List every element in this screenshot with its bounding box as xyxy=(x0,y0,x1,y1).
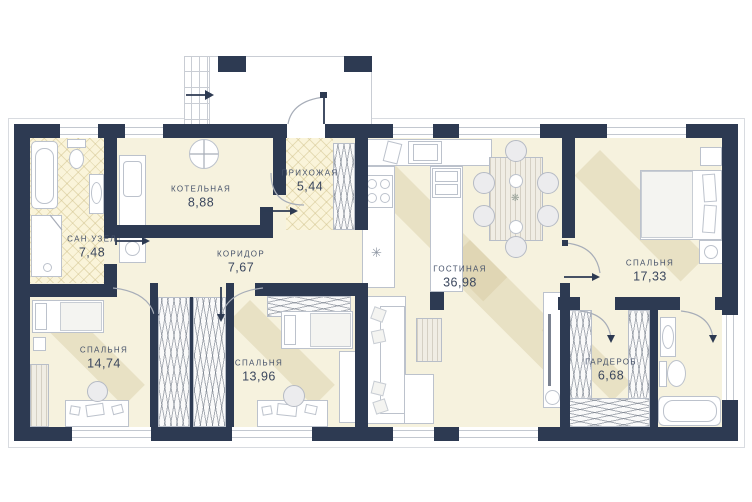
wall xyxy=(104,138,117,238)
bed-blanket xyxy=(60,302,102,331)
desk-chair xyxy=(87,381,108,402)
toilet-bowl xyxy=(69,149,84,169)
window xyxy=(393,124,433,138)
room-name: СПАЛЬНЯ xyxy=(80,346,128,355)
nightstand xyxy=(33,337,46,351)
table-plate xyxy=(509,174,523,188)
room-area: 17,33 xyxy=(626,270,674,284)
nightstand xyxy=(700,147,722,166)
bed-pillow xyxy=(702,205,717,234)
window xyxy=(607,124,686,138)
nightstand-plant xyxy=(704,245,718,259)
bathroom-sink xyxy=(91,182,102,204)
wall xyxy=(562,138,575,238)
wall xyxy=(30,284,110,297)
window xyxy=(459,124,540,138)
room-name: КОРИДОР xyxy=(217,250,265,259)
wall xyxy=(355,283,368,427)
fridge-door xyxy=(435,184,458,195)
dining-chair xyxy=(505,236,527,258)
room-label-bedroom-1: СПАЛЬНЯ 17,33 xyxy=(626,259,674,284)
room-area: 36,98 xyxy=(433,276,487,290)
utility-sink xyxy=(123,161,142,197)
room-area: 7,67 xyxy=(217,261,265,275)
window xyxy=(722,315,738,400)
room-label-boiler: КОТЕЛЬНАЯ 8,88 xyxy=(171,185,231,210)
wall xyxy=(355,138,368,230)
wall xyxy=(190,297,193,427)
bathtub-basin xyxy=(663,400,717,422)
wall xyxy=(715,297,738,310)
boiler xyxy=(189,139,219,169)
room-name: СПАЛЬНЯ xyxy=(235,359,283,368)
room-label-bathroom: САН.УЗЕЛ 7,48 xyxy=(67,235,117,260)
room-label-corridor: КОРИДОР 7,67 xyxy=(217,250,265,275)
window xyxy=(72,427,151,441)
porch-steps xyxy=(184,56,210,125)
room-label-living: ГОСТИНАЯ 36,98 xyxy=(433,265,487,290)
room-label-bedroom-2: СПАЛЬНЯ 14,74 xyxy=(80,346,128,371)
porch-pillar xyxy=(218,56,246,72)
sofa-chaise xyxy=(404,374,434,424)
dining-chair xyxy=(473,172,495,194)
wall xyxy=(14,124,30,441)
window xyxy=(393,427,434,441)
floor-plan: ✳ ❋ xyxy=(0,0,752,502)
window xyxy=(60,124,98,138)
room-label-bedroom-3: СПАЛЬНЯ 13,96 xyxy=(235,359,283,384)
room-name: САН.УЗЕЛ xyxy=(67,235,117,244)
dining-chair xyxy=(537,172,559,194)
dining-chair xyxy=(505,140,527,162)
table-plant-icon: ❋ xyxy=(511,194,519,204)
burner xyxy=(380,179,390,189)
room-area: 8,88 xyxy=(171,196,231,210)
laptop xyxy=(85,403,104,417)
porch-pillar xyxy=(344,56,372,72)
entrance-opening xyxy=(287,124,325,138)
wall xyxy=(226,283,234,427)
wall xyxy=(260,207,273,225)
papers xyxy=(69,405,80,416)
bed-pillow xyxy=(35,303,47,330)
room-area: 13,96 xyxy=(235,370,283,384)
toilet-tank xyxy=(659,361,667,387)
fridge-door xyxy=(435,171,458,182)
window xyxy=(232,427,312,441)
dining-chair xyxy=(473,205,495,227)
table-plate xyxy=(509,220,523,234)
dining-chair xyxy=(537,205,559,227)
room-name: СПАЛЬНЯ xyxy=(626,259,674,268)
desk-chair xyxy=(283,385,305,407)
room-label-entry: ПРИХОЖАЯ 5,44 xyxy=(282,169,339,194)
sofa-pillow xyxy=(371,329,386,344)
burner xyxy=(380,193,390,203)
papers xyxy=(261,405,272,416)
room-area: 6,68 xyxy=(585,369,637,383)
room-name: КОТЕЛЬНАЯ xyxy=(171,185,231,194)
coffee-table xyxy=(416,318,442,362)
wall xyxy=(104,225,273,238)
bed-pillow xyxy=(284,315,296,345)
kitchen-sink-basin xyxy=(413,144,438,161)
closet-shelving xyxy=(193,297,226,427)
tv-screen xyxy=(548,314,551,386)
wall xyxy=(558,297,580,310)
wall xyxy=(650,310,658,427)
wardrobe-shelving xyxy=(568,398,650,427)
plant-pot xyxy=(545,390,560,405)
room-name: ПРИХОЖАЯ xyxy=(282,169,339,178)
wall xyxy=(150,283,158,427)
bathtub-basin xyxy=(35,148,54,204)
room-name: ГАРДЕРОБ xyxy=(585,358,637,367)
washer-drum xyxy=(125,241,140,256)
room-area: 7,48 xyxy=(67,246,117,260)
toilet-tank xyxy=(67,139,86,148)
room-label-wardrobe: ГАРДЕРОБ 6,68 xyxy=(585,358,637,383)
wall xyxy=(255,283,355,296)
bathroom-sink xyxy=(662,325,674,349)
wall xyxy=(615,297,680,310)
burner xyxy=(367,193,377,203)
bed-blanket xyxy=(641,171,693,238)
toilet-bowl xyxy=(667,360,686,387)
room-area: 5,44 xyxy=(282,180,339,194)
window xyxy=(459,427,538,441)
burner xyxy=(367,179,377,189)
dresser xyxy=(30,364,49,427)
room-area: 14,74 xyxy=(80,357,128,371)
shower-drain xyxy=(43,263,52,272)
bed-blanket xyxy=(310,313,351,347)
wall xyxy=(430,292,444,310)
window xyxy=(125,124,163,138)
bed-pillow xyxy=(702,174,717,203)
dishwasher-icon: ✳ xyxy=(371,246,382,259)
room-name: ГОСТИНАЯ xyxy=(433,265,487,274)
closet-shelving xyxy=(158,297,190,427)
